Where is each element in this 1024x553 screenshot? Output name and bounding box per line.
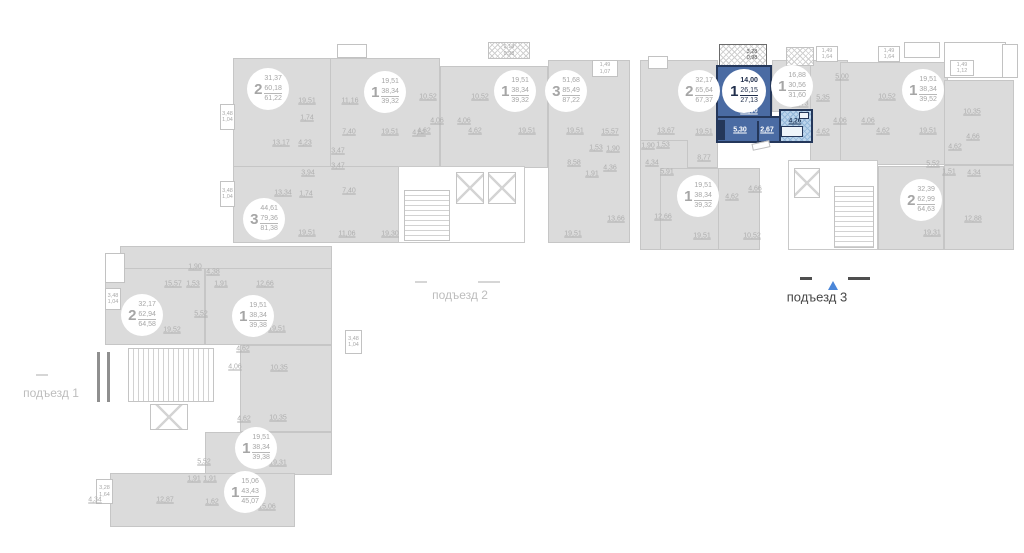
area: 62,94: [138, 310, 156, 320]
floor-plan: 3,48 1,04 3,48 1,04 2,18 0,98 1,49 1,07 …: [0, 0, 1024, 553]
area-label: 4,62: [417, 128, 431, 135]
area-label: 4,62: [816, 129, 830, 136]
area-label: 19,51: [564, 231, 582, 238]
rooms-count: 2: [685, 83, 693, 100]
total-area: 39,32: [381, 97, 399, 106]
balcony: [1002, 44, 1018, 78]
entrance-3-label: подъезд 3: [787, 290, 847, 305]
area-label: 3,47: [331, 163, 345, 170]
area-label: 13,17: [272, 140, 290, 147]
area-label: 19,52: [163, 327, 181, 334]
living-area: 31,37: [264, 74, 282, 83]
balcony: [105, 253, 125, 283]
area-label: 3,47: [331, 148, 345, 155]
area-label: 5,52: [197, 459, 211, 466]
area-label: 13,67: [657, 128, 675, 135]
area: 85,49: [562, 86, 580, 96]
entrance-arrow-icon: [828, 281, 838, 290]
rooms-count: 1: [684, 188, 692, 205]
area-label: 11,16: [342, 98, 359, 105]
area-label: 1,90: [641, 143, 655, 150]
area: 26,15: [740, 86, 758, 96]
area-label: 1,90: [188, 264, 202, 271]
balcony: [337, 44, 367, 58]
balcony: 3,48 1,04: [220, 181, 235, 207]
area: 79,36: [260, 214, 278, 224]
room-area-label: 2,67: [760, 127, 774, 134]
balcony: 3,48 1,04: [345, 330, 362, 354]
living-area: 32,17: [138, 300, 156, 309]
total-area: 87,22: [562, 96, 580, 105]
elevator-shaft: [150, 404, 188, 430]
area-label: 3,94: [301, 170, 315, 177]
area-label: 10,35: [270, 365, 288, 372]
total-area: 31,60: [788, 91, 806, 100]
total-area: 39,32: [694, 201, 712, 210]
wall-tick: [415, 281, 427, 283]
area: 30,56: [788, 81, 806, 91]
apartment-block[interactable]: [944, 165, 1014, 250]
apartment-block[interactable]: [944, 80, 1014, 165]
living-area: 14,00: [740, 76, 758, 85]
balcony-label: 1,49 1,12: [957, 62, 968, 74]
rooms-count: 3: [250, 211, 258, 228]
area-label: 15,57: [601, 129, 619, 136]
area-label: 12,87: [156, 497, 174, 504]
area-label: 1,62: [205, 499, 219, 506]
area-label: 5,52: [194, 311, 208, 318]
rooms-count: 1: [501, 83, 509, 100]
area-label: 4,62: [725, 194, 739, 201]
balcony-label: 3,48 1,04: [108, 293, 119, 305]
area: 38,34: [381, 87, 399, 97]
staircase: [834, 186, 874, 248]
area: 38,34: [252, 443, 270, 453]
area-label: 1,74: [299, 191, 313, 198]
balcony-label: 1,49 1,64: [884, 48, 895, 60]
rooms-count: 1: [231, 484, 239, 501]
area-label: 1,91: [187, 476, 201, 483]
apartment-badge[interactable]: 119,5138,3439,32: [677, 175, 719, 217]
area-label: 10,35: [269, 415, 287, 422]
total-area: 61,22: [264, 94, 282, 103]
area: 38,34: [694, 191, 712, 201]
area-label: 8,58: [567, 160, 581, 167]
area-label: 4,34: [88, 497, 102, 504]
area-label: 4,23: [298, 140, 312, 147]
area-label: 13,66: [607, 216, 625, 223]
area-label: 7,40: [342, 129, 356, 136]
balcony: 3,48 1,04: [105, 288, 121, 310]
area-label: 11,06: [339, 231, 356, 238]
balcony: 1,49 1,07: [592, 60, 618, 77]
area-label: 4,34: [967, 170, 981, 177]
area-label: 4,62: [876, 128, 890, 135]
area-label: 4,38: [206, 269, 220, 276]
apartment-badge[interactable]: 351,6885,4987,22: [545, 70, 587, 112]
living-area: 19,51: [252, 433, 270, 442]
elevator-shaft: [488, 172, 516, 204]
entrance-wall: [97, 352, 100, 402]
highlight-apartment-badge[interactable]: 114,0026,1527,13: [722, 69, 766, 113]
area-label: 4,66: [748, 186, 762, 193]
area-label: 19,51: [298, 230, 316, 237]
wall-tick: [36, 374, 48, 376]
balcony-label: 1,49 1,64: [822, 48, 833, 60]
area: 38,34: [511, 86, 529, 96]
area-label: 5,52: [926, 161, 940, 168]
wall-tick: [478, 281, 500, 283]
staircase: [404, 190, 450, 241]
apartment-block[interactable]: [120, 246, 332, 270]
rooms-count: 1: [730, 83, 738, 100]
area-label: 10,52: [419, 94, 437, 101]
balcony-label: 3,48 1,04: [222, 188, 233, 200]
balcony-label: 1,49 1,07: [600, 62, 611, 74]
area-label: 1,53: [186, 281, 200, 288]
total-area: 27,13: [740, 96, 758, 105]
balcony-label: 2,18 0,98: [504, 44, 515, 56]
apartment-badge[interactable]: 232,1762,9464,58: [121, 294, 163, 336]
area: 38,34: [919, 85, 937, 95]
entrance-2-label: подъезд 2: [432, 288, 488, 302]
area-label: 4,06: [457, 118, 471, 125]
area-label: 12,88: [964, 216, 982, 223]
balcony: [786, 47, 814, 66]
living-area: 19,51: [919, 75, 937, 84]
area-label: 1,53: [589, 145, 603, 152]
area-label: 10,35: [963, 109, 981, 116]
area: 65,64: [695, 86, 713, 96]
living-area: 32,17: [695, 76, 713, 85]
living-area: 16,88: [788, 71, 806, 80]
area-label: 10,52: [743, 233, 761, 240]
room-area-label: 4,26: [789, 118, 802, 125]
area-label: 19,31: [923, 230, 941, 237]
balcony-label: 3,48 1,04: [348, 336, 359, 348]
area-label: 19,51: [919, 128, 937, 135]
rooms-count: 1: [239, 308, 247, 325]
room-area-label: 5,30: [733, 127, 747, 134]
area-label: 4,62: [468, 128, 482, 135]
apartment-badge[interactable]: 231,3760,1861,22: [247, 68, 289, 110]
area-label: 4,62: [237, 416, 251, 423]
area: 43,43: [241, 487, 259, 497]
balcony: 3,48 1,04: [220, 104, 235, 130]
living-area: 15,06: [241, 477, 259, 486]
total-area: 45,07: [241, 497, 259, 506]
balcony: 2,18 0,98: [488, 42, 530, 59]
living-area: 19,51: [249, 301, 267, 310]
area-label: 5,35: [816, 95, 830, 102]
area-label: 15,57: [164, 281, 182, 288]
area-label: 19,51: [381, 129, 399, 136]
rooms-count: 3: [552, 83, 560, 100]
apartment-badge[interactable]: 116,8830,5631,60: [771, 65, 813, 107]
rooms-count: 2: [128, 307, 136, 324]
apartment-badge[interactable]: 119,5138,3439,32: [494, 70, 536, 112]
rooms-count: 1: [909, 82, 917, 99]
area-label: 1,51: [942, 169, 956, 176]
balcony-label: 3,28 0,98: [747, 49, 758, 61]
total-area: 64,58: [138, 320, 156, 329]
area-label: 19,51: [518, 128, 536, 135]
balcony: [904, 42, 940, 58]
area-label: 19,51: [695, 129, 713, 136]
total-area: 39,38: [252, 453, 270, 462]
area-label: 10,52: [878, 94, 896, 101]
balcony: 1,49 1,64: [816, 46, 838, 62]
area-label: 1,91: [214, 281, 228, 288]
area-label: 4,62: [948, 144, 962, 151]
area-label: 1,53: [656, 142, 670, 149]
total-area: 67,37: [695, 96, 713, 105]
living-area: 19,51: [511, 76, 529, 85]
living-area: 51,68: [562, 76, 580, 85]
area-label: 4,06: [861, 118, 875, 125]
wall-tick: [848, 277, 870, 280]
total-area: 81,38: [260, 224, 278, 233]
area-label: 4,06: [833, 118, 847, 125]
living-area: 44,61: [260, 204, 278, 213]
rooms-count: 1: [371, 84, 379, 101]
entrance-wall: [107, 352, 110, 402]
balcony: [648, 56, 668, 69]
area-label: 12,66: [256, 281, 274, 288]
kitchen-unit: [718, 120, 725, 140]
area: 62,99: [917, 195, 935, 205]
total-area: 39,38: [249, 321, 267, 330]
area-label: 1,91: [585, 171, 599, 178]
wall-tick: [800, 277, 812, 280]
balcony-label: 3,48 1,04: [222, 111, 233, 123]
rooms-count: 2: [254, 81, 262, 98]
entrance-1-label: подъезд 1: [23, 386, 79, 400]
elevator-shaft: [794, 168, 820, 198]
highlight-balcony: 3,28 0,98: [719, 44, 767, 66]
bathtub: [781, 126, 803, 137]
total-area: 64,63: [917, 205, 935, 214]
area-label: 13,34: [274, 190, 292, 197]
living-area: 19,51: [381, 77, 399, 86]
balcony: 1,49 1,12: [950, 60, 974, 76]
area-label: 19,30: [381, 231, 399, 238]
total-area: 39,32: [511, 96, 529, 105]
area-label: 1,91: [203, 476, 217, 483]
rooms-count: 1: [778, 78, 786, 95]
area: 60,18: [264, 84, 282, 94]
area-label: 1,74: [300, 115, 314, 122]
apartment-badge[interactable]: 119,5138,3439,38: [235, 427, 277, 469]
area-label: 19,51: [566, 128, 584, 135]
apartment-badge[interactable]: 232,1765,6467,37: [678, 70, 720, 112]
apartment-badge[interactable]: 119,5138,3439,32: [364, 71, 406, 113]
apartment-badge[interactable]: 119,5138,3439,52: [902, 69, 944, 111]
area-label: 1,90: [606, 146, 620, 153]
living-area: 19,51: [694, 181, 712, 190]
apartment-badge[interactable]: 115,0643,4345,07: [224, 471, 266, 513]
area-label: 5,91: [660, 169, 674, 176]
area-label: 19,51: [298, 98, 316, 105]
rooms-count: 1: [242, 440, 250, 457]
area-label: 4,06: [430, 118, 444, 125]
apartment-badge[interactable]: 232,3962,9964,63: [900, 179, 942, 221]
area-label: 8,77: [697, 155, 711, 162]
area-label: 4,36: [603, 165, 617, 172]
total-area: 39,52: [919, 95, 937, 104]
area-label: 12,66: [654, 214, 672, 221]
area-label: 4,66: [966, 134, 980, 141]
apartment-badge[interactable]: 119,5138,3439,38: [232, 295, 274, 337]
living-area: 32,39: [917, 185, 935, 194]
staircase: [128, 348, 214, 402]
area-label: 4,62: [236, 346, 250, 353]
area-label: 4,06: [228, 364, 242, 371]
area-label: 10,52: [471, 94, 489, 101]
elevator-shaft: [456, 172, 484, 204]
area: 38,34: [249, 311, 267, 321]
inner-wall: [757, 121, 759, 141]
rooms-count: 2: [907, 192, 915, 209]
area-label: 5,00: [835, 74, 849, 81]
apartment-badge[interactable]: 344,6179,3681,38: [243, 198, 285, 240]
area-label: 4,34: [645, 160, 659, 167]
balcony: 1,49 1,64: [878, 46, 900, 62]
area-label: 7,40: [342, 188, 356, 195]
area-label: 19,51: [693, 233, 711, 240]
